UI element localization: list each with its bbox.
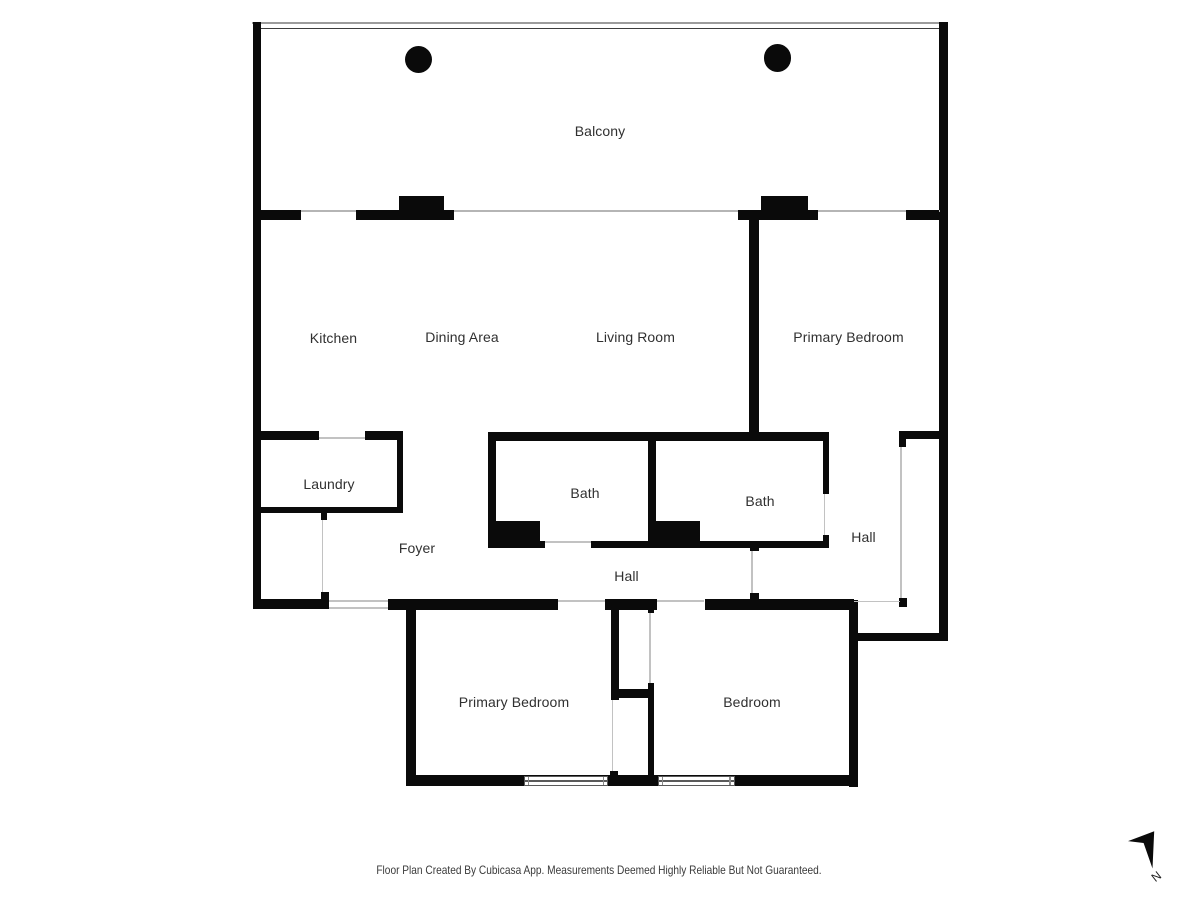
svg-text:N: N	[1149, 868, 1164, 884]
